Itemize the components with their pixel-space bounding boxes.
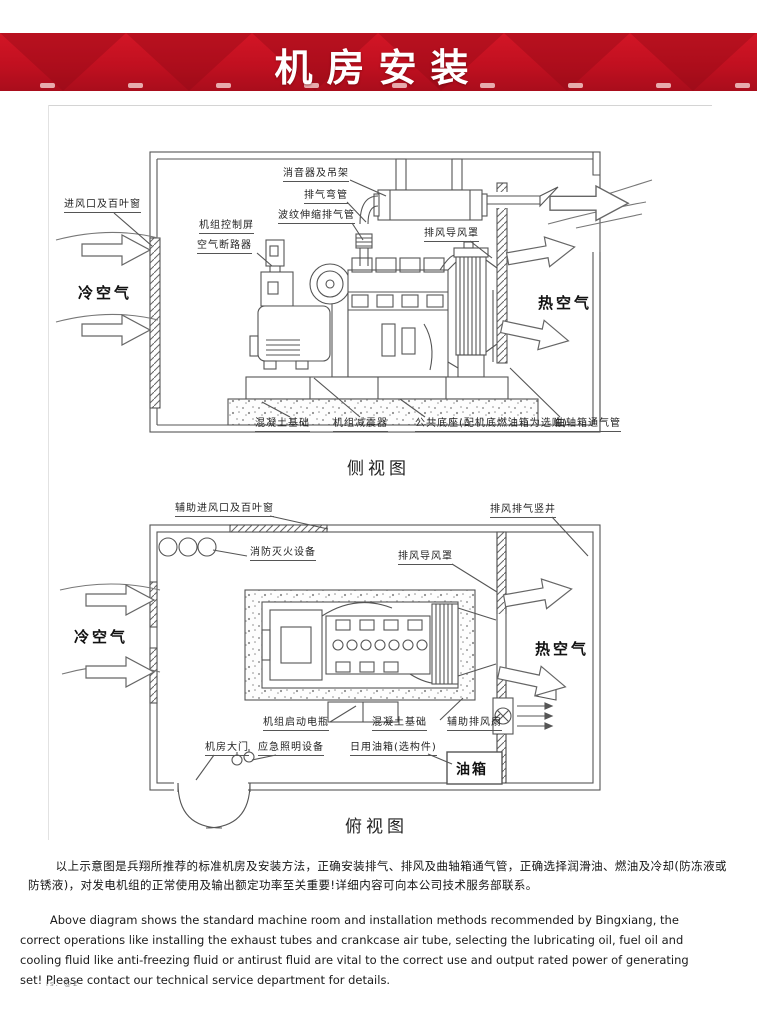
label-hot-air: 热空气 [535,638,589,659]
top-view-drawing [0,490,757,840]
label-aux-inlet: 辅助进风口及百叶窗 [175,503,274,517]
label-shaft: 排风排气竖井 [490,504,556,518]
door [174,781,250,828]
label-breaker: 空气断路器 [197,240,252,254]
label-cold-air: 冷空气 [78,282,132,303]
page-banner: 机房安装 [0,33,757,91]
label-hot-air: 热空气 [538,292,592,313]
exhaust-pipe [356,196,378,266]
exhaust-shaft-wall [497,183,507,363]
top-view-diagram: 辅助进风口及百叶窗 排风排气竖井 消防灭火设备 排风导风罩 冷空气 热空气 机组… [0,490,757,840]
label-concrete: 混凝土基础 [255,418,310,432]
side-view-caption: 侧视图 [347,454,410,479]
english-paragraph: Above diagram shows the standard machine… [20,910,708,990]
frame-border-top [48,105,712,106]
label-elbow: 排气弯管 [304,190,348,204]
side-view-diagram: 消音器及吊架 排气弯管 波纹伸缩排气管 机组控制屏 空气断路器 排风导风罩 进风… [0,140,757,480]
label-damper: 机组减震器 [333,418,388,432]
label-control-panel: 机组控制屏 [199,220,254,234]
label-emergency-light: 应急照明设备 [258,742,324,756]
label-base: 公共底座(配机底燃油箱为选购) [415,418,568,432]
generator-set [250,240,456,377]
label-battery: 机组启动电瓶 [263,717,329,731]
document-page: 机房安装 [0,0,757,1024]
chinese-paragraph: 以上示意图是兵翔所推荐的标准机房及安装方法，正确安装排气、排风及曲轴箱通气管，正… [28,857,734,895]
label-muffler: 消音器及吊架 [283,168,349,182]
label-fuel-tank: 油箱 [456,759,488,779]
label-crankcase-pipe: 曲轴箱通气管 [555,418,621,432]
label-day-tank: 日用油箱(选构件) [350,742,437,756]
label-fire-equipment: 消防灭火设备 [250,547,316,561]
label-inlet-louver: 进风口及百叶窗 [64,199,141,213]
footer-glyphs: is. @2 [46,980,80,988]
page-title: 机房安装 [0,37,757,91]
label-aux-fan: 辅助排风扇 [447,717,502,731]
label-bellows: 波纹伸缩排气管 [278,210,355,224]
fire-extinguishers [159,538,216,556]
label-door: 机房大门 [205,742,249,756]
label-cold-air: 冷空气 [74,626,128,647]
radiator [448,242,497,377]
label-outlet-hood: 排风导风罩 [398,551,453,565]
top-view-caption: 俯视图 [345,812,408,837]
label-concrete: 混凝土基础 [372,717,427,731]
label-outlet-hood: 排风导风罩 [424,228,479,242]
